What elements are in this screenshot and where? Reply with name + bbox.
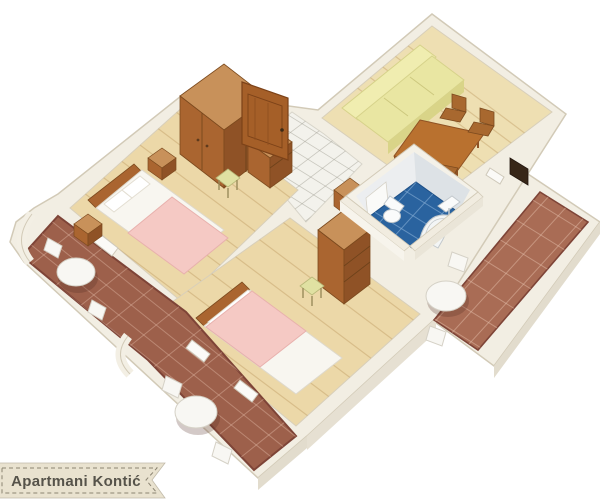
floorplan-image: Apartmani Kontić: [0, 0, 600, 500]
floorplan-svg: Apartmani Kontić: [0, 0, 600, 500]
banner-label: Apartmani Kontić: [11, 473, 141, 490]
banner: Apartmani Kontić: [0, 463, 165, 498]
door-handle: [280, 128, 284, 132]
